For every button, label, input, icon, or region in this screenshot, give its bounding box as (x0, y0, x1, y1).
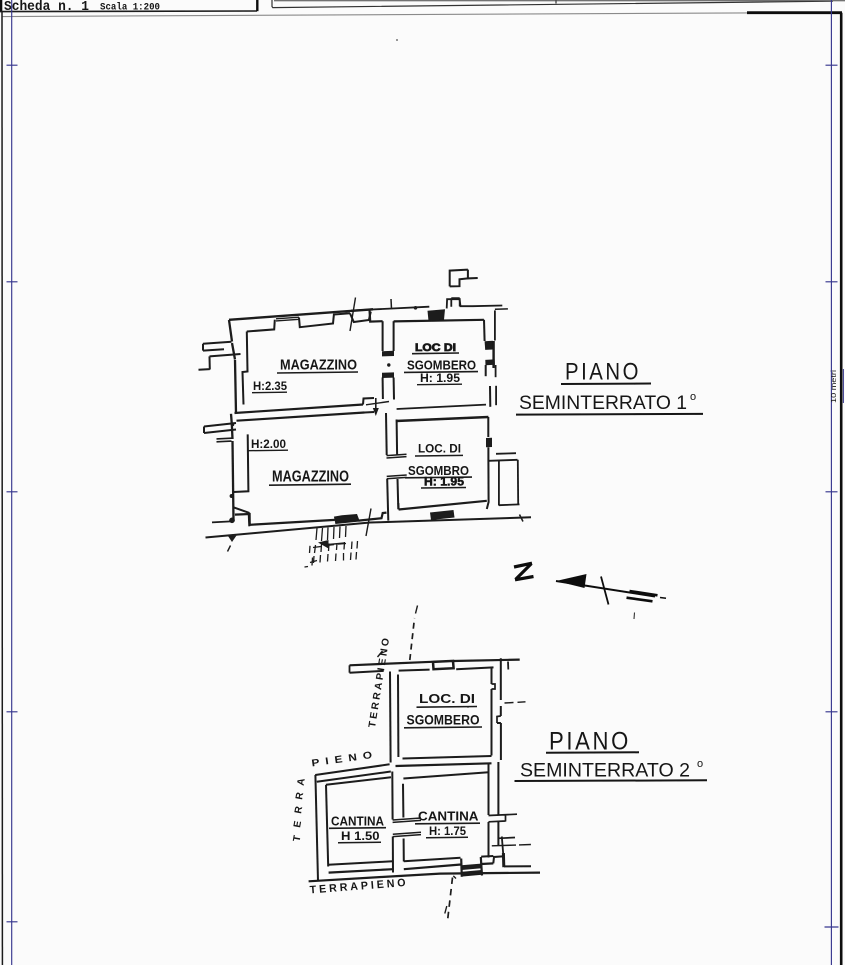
svg-text:o: o (690, 391, 696, 403)
svg-text:PIANO: PIANO (549, 728, 631, 756)
svg-text:H: 1.95: H: 1.95 (424, 477, 465, 489)
svg-text:LOC DI: LOC DI (415, 342, 456, 354)
svg-text:o: o (697, 758, 703, 770)
svg-text:CANTINA: CANTINA (331, 814, 385, 829)
svg-text:Scheda n. 1: Scheda n. 1 (4, 0, 89, 15)
svg-text:CANTINA: CANTINA (418, 809, 479, 824)
svg-text:H: 1.75: H: 1.75 (429, 826, 467, 838)
svg-text:H 1.50: H 1.50 (341, 831, 380, 843)
svg-text:SGOMBERO: SGOMBERO (407, 358, 476, 373)
svg-text:SEMINTERRATO 1: SEMINTERRATO 1 (519, 393, 687, 414)
svg-text:MAGAZZINO: MAGAZZINO (280, 357, 357, 374)
svg-text:H:2.00: H:2.00 (251, 439, 286, 451)
svg-text:LOC. DI: LOC. DI (418, 442, 461, 456)
svg-text:LOC. DI: LOC. DI (419, 692, 475, 706)
svg-text:10 metri: 10 metri (831, 369, 838, 403)
svg-text:H: 1.95: H: 1.95 (420, 373, 461, 385)
svg-text:Scala 1:200: Scala 1:200 (100, 2, 160, 14)
svg-text:MAGAZZINO: MAGAZZINO (272, 469, 349, 486)
svg-text:PIANO: PIANO (565, 359, 641, 386)
svg-text:H:2.35: H:2.35 (253, 381, 288, 393)
svg-text:SGOMBERO: SGOMBERO (407, 713, 480, 728)
svg-text:SEMINTERRATO 2: SEMINTERRATO 2 (520, 760, 690, 782)
